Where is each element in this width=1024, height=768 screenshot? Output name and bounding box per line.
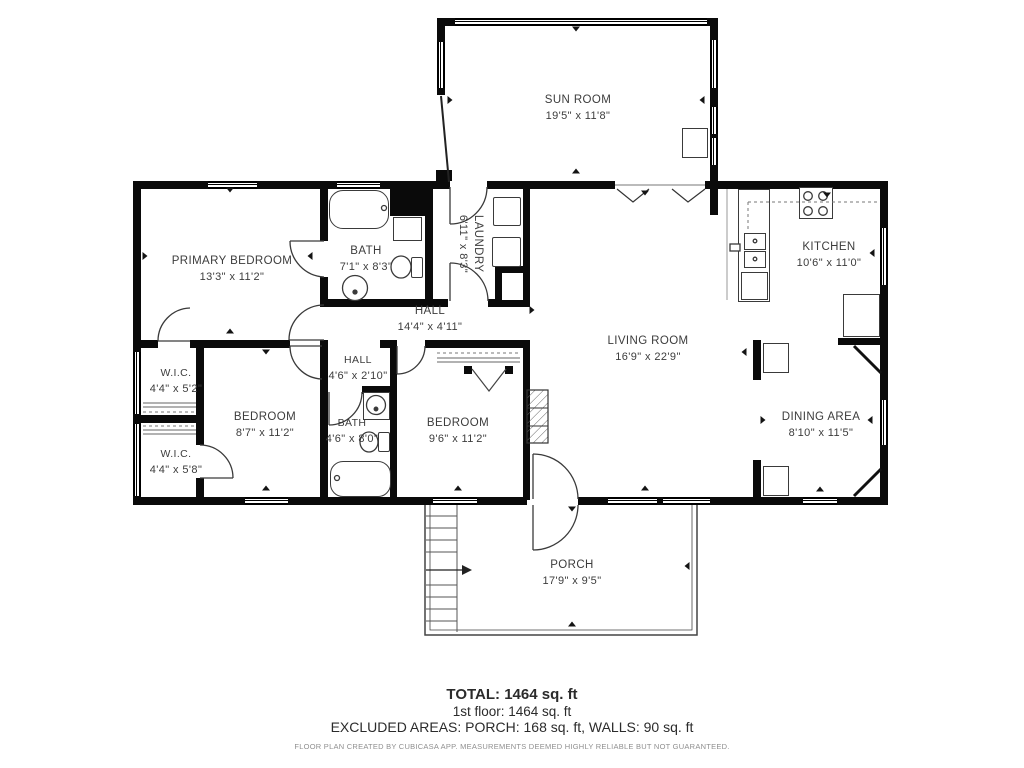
room-dims: 4'4" x 5'8" — [150, 462, 203, 478]
room-name: PORCH — [542, 557, 601, 573]
total-area-text: TOTAL: 1464 sq. ft — [0, 686, 1024, 703]
first-floor-area-text: 1st floor: 1464 sq. ft — [0, 704, 1024, 719]
room-dims: 8'10" x 11'5" — [782, 425, 861, 441]
closet-fold-door — [472, 369, 506, 391]
floor-plan: SUN ROOM 19'5" x 11'8" PRIMARY BEDROOM 1… — [0, 0, 1024, 768]
room-dims: 19'5" x 11'8" — [545, 108, 611, 124]
room-label-primary-bedroom: PRIMARY BEDROOM 13'3" x 11'2" — [172, 253, 293, 285]
dimension-tick — [641, 191, 649, 196]
dimension-tick — [868, 416, 873, 424]
room-name: HALL — [398, 303, 463, 319]
room-label-bedroom-3: BEDROOM 9'6" x 11'2" — [427, 415, 489, 447]
dimension-tick — [448, 96, 453, 104]
sink-icon — [343, 276, 368, 301]
room-dims: 4'6" x 2'10" — [328, 368, 387, 384]
room-dims: 13'3" x 11'2" — [172, 269, 293, 285]
room-dims: 10'6" x 11'0" — [797, 255, 862, 271]
room-label-bath-1: BATH 7'1" x 8'3" — [340, 243, 393, 275]
porch-stairs — [426, 505, 457, 632]
stove-burner-icon — [804, 192, 813, 201]
room-name: BEDROOM — [234, 409, 296, 425]
room-dims: 17'9" x 9'5" — [542, 573, 601, 589]
room-name: LIVING ROOM — [607, 333, 688, 349]
toilet-icon — [391, 256, 411, 278]
room-label-porch: PORCH 17'9" x 9'5" — [542, 557, 601, 589]
stove-burner-icon — [819, 207, 828, 216]
room-name: DINING AREA — [782, 409, 861, 425]
room-name: PRIMARY BEDROOM — [172, 253, 293, 269]
room-dims: 4'6" x 8'0" — [326, 431, 379, 447]
dimension-tick — [816, 487, 824, 492]
room-label-laundry: LAUNDRY 6'11" x 8'3" — [455, 215, 485, 273]
dimension-tick — [262, 486, 270, 491]
dimension-tick — [572, 169, 580, 174]
room-label-sun-room: SUN ROOM 19'5" x 11'8" — [545, 92, 611, 124]
room-label-wic-2: W.I.C. 4'4" x 5'8" — [150, 446, 203, 478]
room-label-kitchen: KITCHEN 10'6" x 11'0" — [797, 239, 862, 271]
disclaimer-text: FLOOR PLAN CREATED BY CUBICASA APP. MEAS… — [0, 742, 1024, 751]
dimension-tick — [226, 329, 234, 334]
room-dims: 9'6" x 11'2" — [427, 431, 489, 447]
room-dims: 14'4" x 4'11" — [398, 319, 463, 335]
dimension-tick — [530, 306, 535, 314]
dimension-tick — [226, 188, 234, 193]
room-label-dining-area: DINING AREA 8'10" x 11'5" — [782, 409, 861, 441]
room-label-bedroom-2: BEDROOM 8'7" x 11'2" — [234, 409, 296, 441]
dimension-tick — [454, 486, 462, 491]
dimension-tick — [308, 252, 313, 260]
dimension-tick — [262, 350, 270, 355]
room-label-bath-2: BATH 4'6" x 8'0" — [326, 415, 379, 447]
dimension-tick — [572, 27, 580, 32]
room-name: W.I.C. — [150, 446, 203, 462]
room-name: LAUNDRY — [470, 215, 485, 273]
room-dims: 6'11" x 8'3" — [455, 215, 470, 273]
room-name: SUN ROOM — [545, 92, 611, 108]
kitchen-sink-drain — [753, 239, 757, 243]
sunroom-diagonal-wall — [441, 96, 449, 182]
dimension-tick — [700, 96, 705, 104]
kitchen-faucet-icon — [730, 244, 740, 251]
dimension-tick — [823, 193, 831, 198]
room-dims: 8'7" x 11'2" — [234, 425, 296, 441]
dimension-tick — [870, 249, 875, 257]
room-name: KITCHEN — [797, 239, 862, 255]
tub-faucet-icon — [335, 476, 340, 481]
room-label-living-room: LIVING ROOM 16'9" x 22'9" — [607, 333, 688, 365]
room-label-hall-2: HALL 4'6" x 2'10" — [328, 352, 387, 384]
excluded-areas-text: EXCLUDED AREAS: PORCH: 168 sq. ft, WALLS… — [0, 719, 1024, 735]
dimension-tick — [742, 348, 747, 356]
dimension-tick — [143, 252, 148, 260]
stove-burner-icon — [804, 207, 813, 216]
stairs-direction-arrow-icon — [426, 565, 472, 575]
dimension-tick — [568, 622, 576, 627]
room-label-wic-1: W.I.C. 4'4" x 5'2" — [150, 365, 203, 397]
kitchen-sink-drain — [753, 257, 757, 261]
room-dims: 16'9" x 22'9" — [607, 349, 688, 365]
room-name: HALL — [328, 352, 387, 368]
room-name: BATH — [326, 415, 379, 431]
sink-icon — [367, 396, 386, 415]
fixtures — [335, 192, 828, 481]
tub-faucet-icon — [382, 206, 387, 211]
room-name: BATH — [340, 243, 393, 259]
dimension-tick — [641, 486, 649, 491]
sunroom-double-doors — [615, 185, 705, 202]
dimension-tick — [685, 562, 690, 570]
room-dims: 7'1" x 8'3" — [340, 259, 393, 275]
dimension-tick — [568, 507, 576, 512]
dimension-tick — [761, 416, 766, 424]
room-name: BEDROOM — [427, 415, 489, 431]
room-label-hall-1: HALL 14'4" x 4'11" — [398, 303, 463, 335]
dashed-lines — [143, 202, 878, 426]
room-dims: 4'4" x 5'2" — [150, 381, 203, 397]
chimney-icon — [527, 390, 548, 443]
room-name: W.I.C. — [150, 365, 203, 381]
